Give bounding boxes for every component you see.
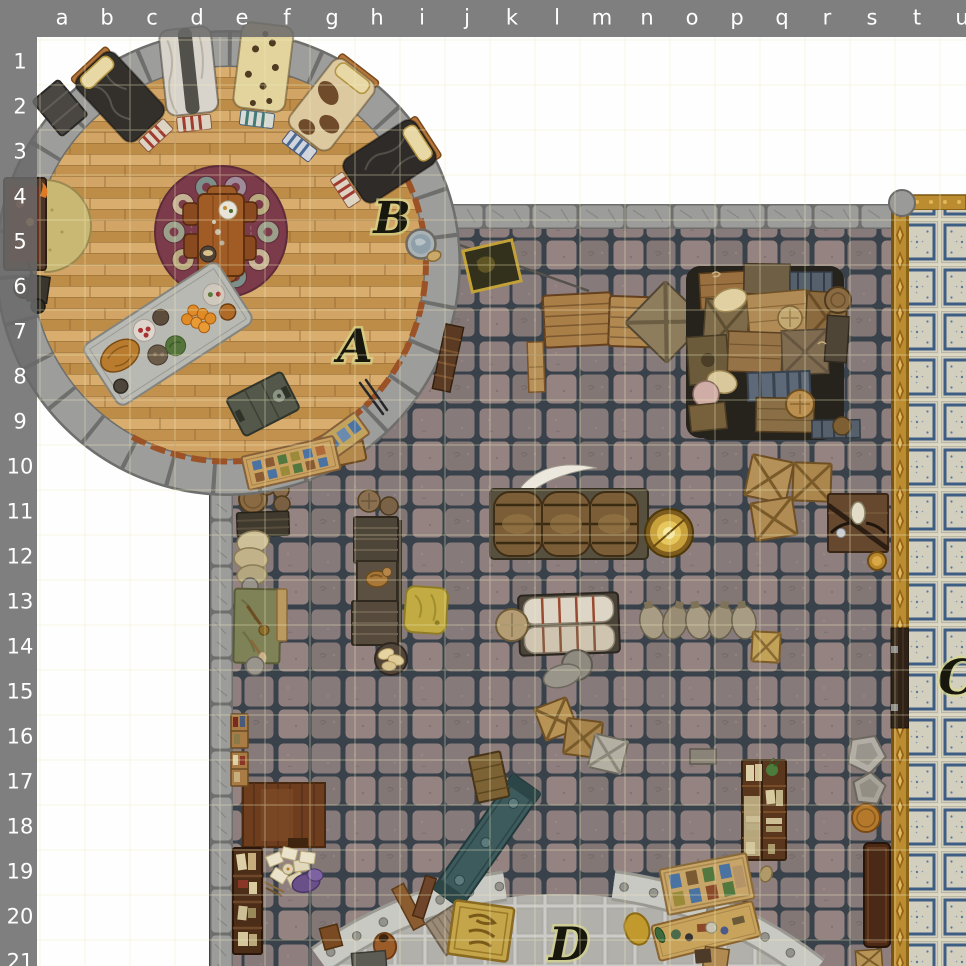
column-label: j <box>464 8 470 29</box>
column-label: p <box>730 8 743 29</box>
row-label: 17 <box>7 772 34 793</box>
row-label: 19 <box>7 862 34 883</box>
column-header-bar: abcdefghijklmnopqrstu <box>0 0 966 37</box>
column-label: m <box>592 8 612 29</box>
column-label: n <box>640 8 653 29</box>
column-label: d <box>190 8 203 29</box>
column-label: h <box>370 8 383 29</box>
row-label: 2 <box>13 97 26 118</box>
column-label: c <box>146 8 158 29</box>
column-label: t <box>913 8 921 29</box>
column-label: b <box>100 8 113 29</box>
row-label: 11 <box>7 502 34 523</box>
column-label: r <box>823 8 832 29</box>
row-label: 5 <box>13 232 26 253</box>
row-label: 8 <box>13 367 26 388</box>
column-label: k <box>506 8 518 29</box>
column-label: u <box>955 8 966 29</box>
row-label: 16 <box>7 727 34 748</box>
row-label: 10 <box>7 457 34 478</box>
row-label: 1 <box>13 52 26 73</box>
column-label: o <box>686 8 699 29</box>
row-label: 4 <box>13 187 26 208</box>
row-label: 3 <box>13 142 26 163</box>
column-label: i <box>419 8 425 29</box>
column-label: g <box>325 8 338 29</box>
column-label: l <box>554 8 560 29</box>
column-label: q <box>775 8 788 29</box>
row-label: 6 <box>13 277 26 298</box>
row-label: 18 <box>7 817 34 838</box>
row-label: 20 <box>7 907 34 928</box>
row-label: 21 <box>7 952 34 966</box>
column-label: s <box>867 8 878 29</box>
map-grid-overlay <box>37 37 966 966</box>
row-label: 9 <box>13 412 26 433</box>
row-label: 13 <box>7 592 34 613</box>
row-label: 15 <box>7 682 34 703</box>
column-label: a <box>56 8 69 29</box>
row-label: 14 <box>7 637 34 658</box>
battle-map-canvas[interactable]: A B C D <box>0 0 966 966</box>
row-header-bar: 123456789101112131415161718192021 <box>0 37 37 966</box>
column-label: e <box>236 8 249 29</box>
row-label: 12 <box>7 547 34 568</box>
column-label: f <box>283 8 290 29</box>
map-stage: A B C D abcdefghijklmnopqrstu 1234567891… <box>0 0 966 966</box>
row-label: 7 <box>13 322 26 343</box>
